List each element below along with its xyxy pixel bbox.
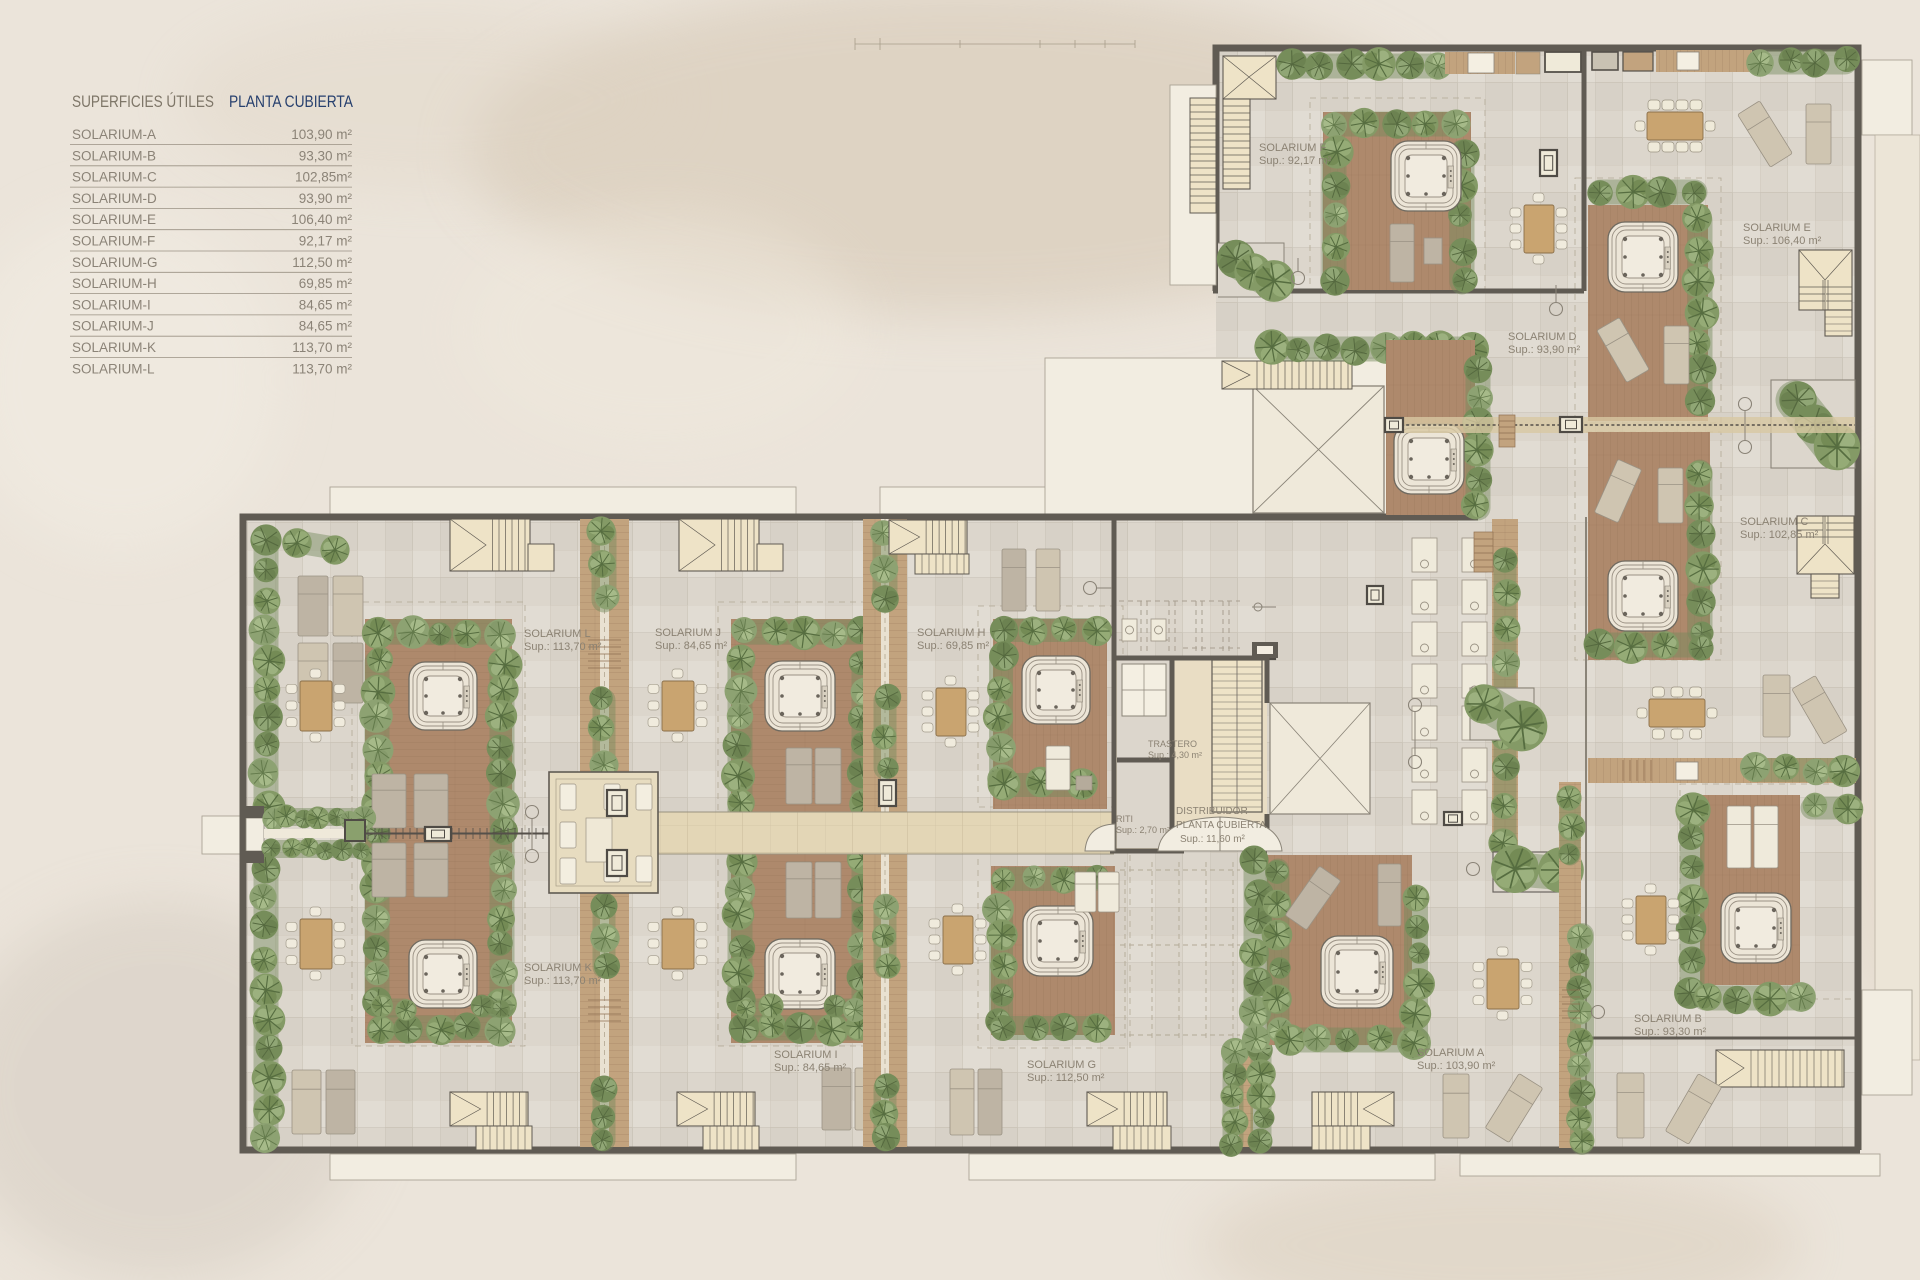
svg-text:SOLARIUM-A: SOLARIUM-A bbox=[72, 127, 156, 142]
svg-text:RITI: RITI bbox=[1116, 814, 1133, 824]
svg-text:SOLARIUM B: SOLARIUM B bbox=[1634, 1013, 1702, 1025]
svg-text:SOLARIUM-K: SOLARIUM-K bbox=[72, 340, 156, 355]
svg-text:PLANTA CUBIERTA: PLANTA CUBIERTA bbox=[1176, 820, 1266, 831]
svg-text:Sup.: 92,17 m²: Sup.: 92,17 m² bbox=[1259, 155, 1331, 167]
svg-text:SOLARIUM K: SOLARIUM K bbox=[524, 962, 593, 974]
svg-text:Sup.: 113,70 m²: Sup.: 113,70 m² bbox=[524, 975, 602, 987]
svg-text:93,30 m²: 93,30 m² bbox=[299, 148, 353, 163]
svg-text:84,65 m²: 84,65 m² bbox=[299, 297, 353, 312]
svg-text:DISTRIBUIDOR: DISTRIBUIDOR bbox=[1176, 806, 1248, 817]
svg-text:106,40 m²: 106,40 m² bbox=[291, 212, 352, 227]
svg-text:SUPERFICIES ÚTILES: SUPERFICIES ÚTILES bbox=[72, 92, 214, 111]
svg-text:SOLARIUM D: SOLARIUM D bbox=[1508, 331, 1577, 343]
svg-text:Sup.: 93,30 m²: Sup.: 93,30 m² bbox=[1634, 1026, 1706, 1038]
svg-text:112,50 m²: 112,50 m² bbox=[292, 255, 352, 270]
svg-text:SOLARIUM-J: SOLARIUM-J bbox=[72, 319, 154, 334]
svg-text:SOLARIUM C: SOLARIUM C bbox=[1740, 516, 1809, 528]
svg-text:113,70 m²: 113,70 m² bbox=[292, 340, 352, 355]
svg-text:TRASTERO: TRASTERO bbox=[1148, 739, 1197, 749]
svg-text:SOLARIUM H: SOLARIUM H bbox=[917, 627, 986, 639]
svg-text:SOLARIUM A: SOLARIUM A bbox=[1417, 1047, 1485, 1059]
svg-text:SOLARIUM-B: SOLARIUM-B bbox=[72, 148, 156, 163]
svg-text:84,65 m²: 84,65 m² bbox=[299, 319, 353, 334]
svg-text:SOLARIUM F: SOLARIUM F bbox=[1259, 142, 1327, 154]
svg-text:SOLARIUM J: SOLARIUM J bbox=[655, 627, 721, 639]
svg-text:SOLARIUM I: SOLARIUM I bbox=[774, 1049, 838, 1061]
svg-text:SOLARIUM E: SOLARIUM E bbox=[1743, 222, 1811, 234]
svg-text:SOLARIUM-I: SOLARIUM-I bbox=[72, 297, 151, 312]
svg-text:SOLARIUM-G: SOLARIUM-G bbox=[72, 255, 158, 270]
svg-text:SOLARIUM-E: SOLARIUM-E bbox=[72, 212, 156, 227]
svg-text:Sup.: 93,90 m²: Sup.: 93,90 m² bbox=[1508, 344, 1580, 356]
svg-text:93,90 m²: 93,90 m² bbox=[299, 191, 353, 206]
svg-text:Sup.: 84,65 m²: Sup.: 84,65 m² bbox=[655, 640, 727, 652]
svg-text:Sup.: 113,70 m²: Sup.: 113,70 m² bbox=[524, 641, 602, 653]
svg-text:Sup.: 4,30 m²: Sup.: 4,30 m² bbox=[1148, 750, 1202, 760]
svg-text:Sup.: 102,85 m²: Sup.: 102,85 m² bbox=[1740, 529, 1819, 541]
svg-text:103,90 m²: 103,90 m² bbox=[291, 127, 352, 142]
svg-text:69,85 m²: 69,85 m² bbox=[299, 276, 353, 291]
svg-text:Sup.: 69,85 m²: Sup.: 69,85 m² bbox=[917, 640, 989, 652]
svg-text:Sup.: 2,70 m²: Sup.: 2,70 m² bbox=[1116, 825, 1170, 835]
svg-text:113,70 m²: 113,70 m² bbox=[292, 361, 352, 376]
svg-text:PLANTA CUBIERTA: PLANTA CUBIERTA bbox=[229, 92, 354, 111]
svg-text:Sup.: 84,65 m²: Sup.: 84,65 m² bbox=[774, 1062, 846, 1074]
svg-text:SOLARIUM-C: SOLARIUM-C bbox=[72, 170, 157, 185]
svg-text:Sup.: 106,40 m²: Sup.: 106,40 m² bbox=[1743, 235, 1822, 247]
svg-text:102,85m²: 102,85m² bbox=[295, 170, 353, 185]
svg-text:Sup.: 103,90 m²: Sup.: 103,90 m² bbox=[1417, 1060, 1496, 1072]
svg-text:SOLARIUM-D: SOLARIUM-D bbox=[72, 191, 157, 206]
svg-text:SOLARIUM-H: SOLARIUM-H bbox=[72, 276, 157, 291]
svg-text:SOLARIUM-L: SOLARIUM-L bbox=[72, 361, 155, 376]
svg-text:SOLARIUM G: SOLARIUM G bbox=[1027, 1059, 1096, 1071]
svg-text:Sup.: 11,60 m²: Sup.: 11,60 m² bbox=[1180, 834, 1246, 845]
svg-text:Sup.: 112,50 m²: Sup.: 112,50 m² bbox=[1027, 1072, 1105, 1084]
svg-text:SOLARIUM-F: SOLARIUM-F bbox=[72, 234, 155, 249]
svg-text:92,17 m²: 92,17 m² bbox=[299, 234, 353, 249]
svg-text:SOLARIUM L: SOLARIUM L bbox=[524, 628, 591, 640]
